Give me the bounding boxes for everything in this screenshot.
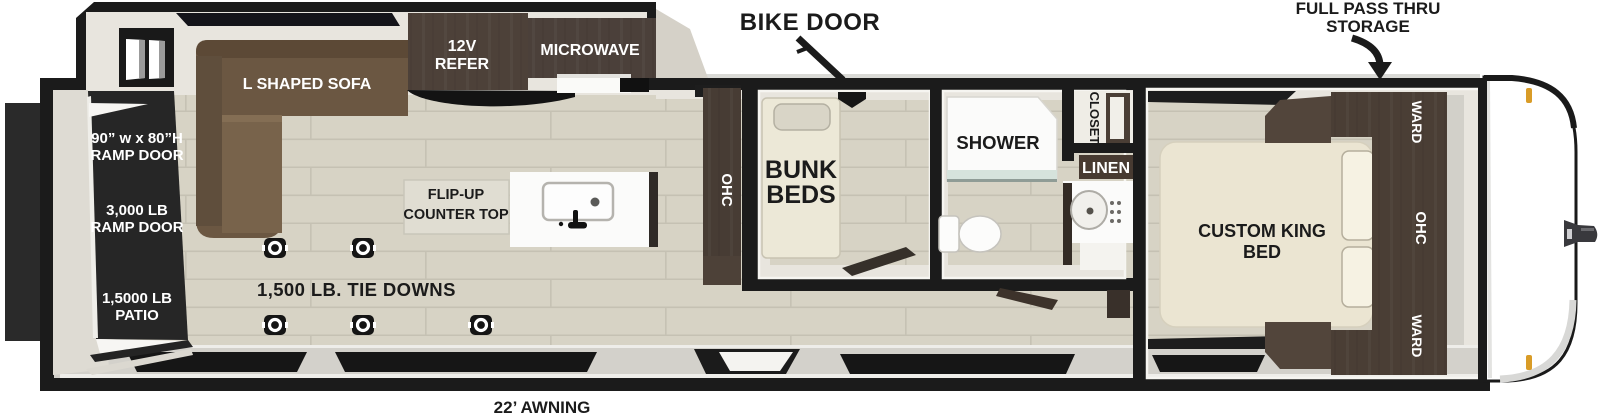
- svg-text:SHOWER: SHOWER: [956, 132, 1039, 153]
- svg-text:12V: 12V: [448, 38, 477, 55]
- svg-text:BED: BED: [1243, 242, 1281, 262]
- svg-text:RAMP DOOR: RAMP DOOR: [90, 147, 183, 164]
- svg-text:CLOSET: CLOSET: [1087, 92, 1102, 145]
- svg-text:REFER: REFER: [435, 56, 490, 73]
- svg-text:WARD: WARD: [1409, 315, 1425, 358]
- svg-text:OHC: OHC: [718, 173, 735, 207]
- svg-text:BIKE DOOR: BIKE DOOR: [740, 9, 881, 36]
- svg-text:COUNTER TOP: COUNTER TOP: [403, 207, 509, 223]
- svg-text:FULL PASS THRU: FULL PASS THRU: [1296, 0, 1441, 18]
- svg-text:OHC: OHC: [1412, 211, 1429, 245]
- svg-text:1,500 LB. TIE DOWNS: 1,500 LB. TIE DOWNS: [257, 279, 456, 300]
- svg-text:LINEN: LINEN: [1082, 160, 1130, 177]
- svg-text:RAMP DOOR: RAMP DOOR: [90, 219, 183, 236]
- svg-text:90” w x 80”H: 90” w x 80”H: [91, 130, 183, 147]
- svg-text:22’ AWNING: 22’ AWNING: [494, 398, 591, 415]
- svg-text:PATIO: PATIO: [115, 307, 159, 324]
- svg-text:STORAGE: STORAGE: [1326, 17, 1410, 36]
- svg-text:L SHAPED SOFA: L SHAPED SOFA: [243, 76, 372, 93]
- svg-text:CUSTOM KING: CUSTOM KING: [1198, 221, 1326, 241]
- svg-text:WARD: WARD: [1409, 101, 1425, 144]
- svg-text:MICROWAVE: MICROWAVE: [540, 42, 640, 59]
- svg-text:1,5000 LB: 1,5000 LB: [102, 290, 172, 307]
- svg-text:BEDS: BEDS: [766, 181, 835, 209]
- svg-text:BUNK: BUNK: [765, 156, 837, 184]
- svg-text:FLIP-UP: FLIP-UP: [428, 187, 485, 203]
- svg-text:3,000 LB: 3,000 LB: [106, 202, 168, 219]
